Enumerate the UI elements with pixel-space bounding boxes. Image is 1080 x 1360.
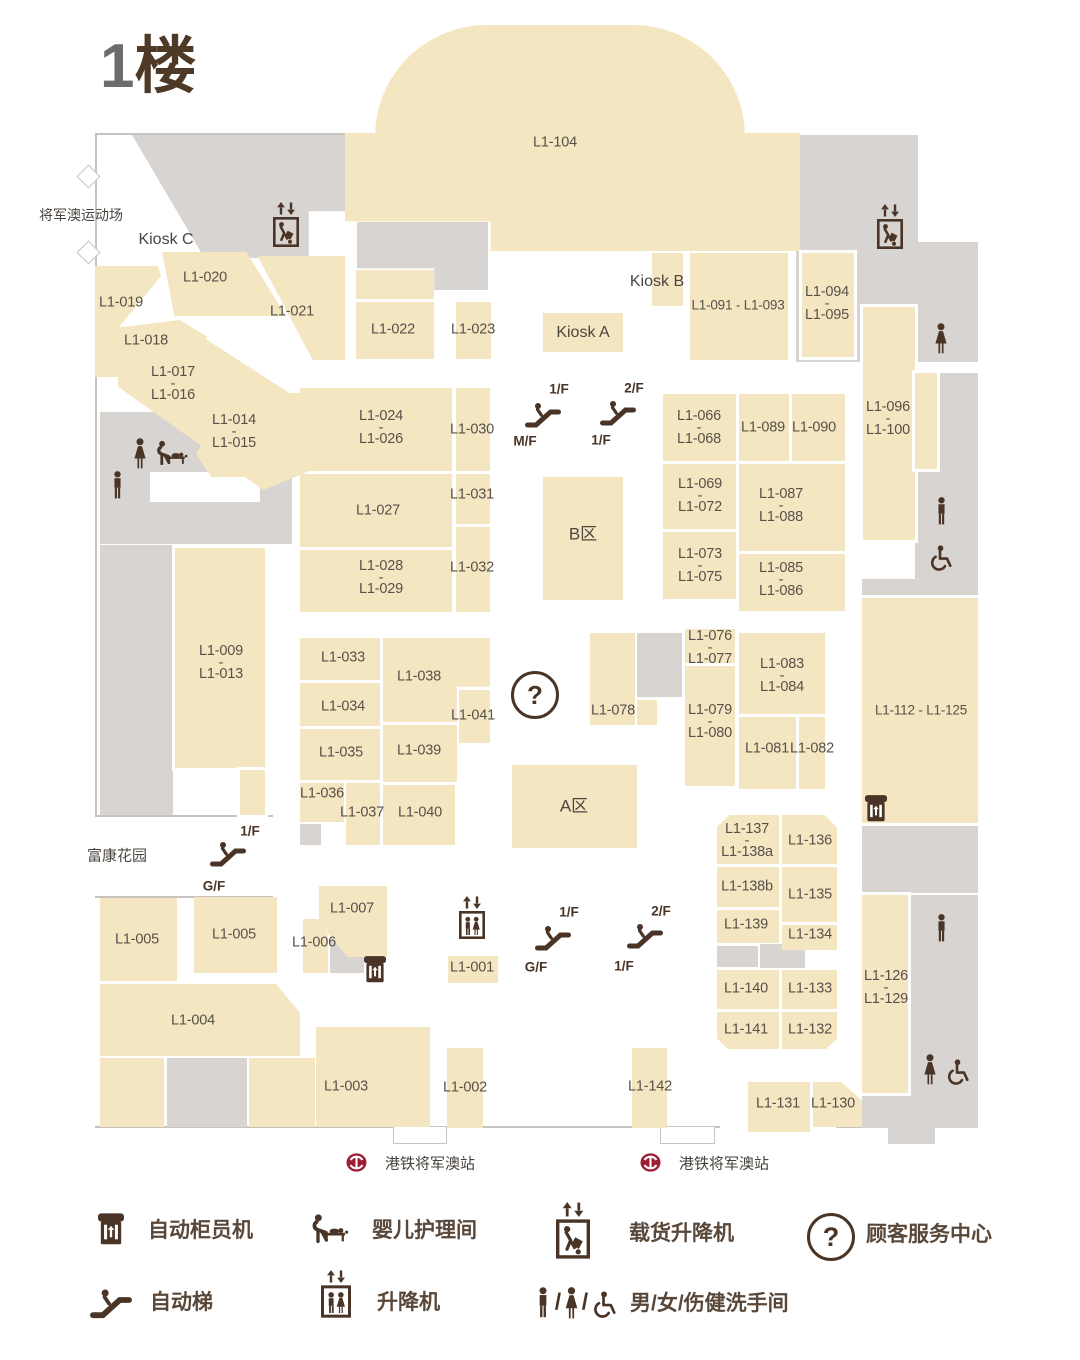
boundary-left: [95, 133, 97, 817]
unit-l1-006-label: L1-006: [292, 937, 336, 949]
atm-icon: [98, 1212, 124, 1245]
unit-l1-034-label: L1-034: [321, 701, 365, 713]
corridor-right-bottom2: [862, 1095, 908, 1128]
unit-l1-078-label: L1-078: [591, 705, 635, 717]
up-down-arrows-icon: [325, 1270, 347, 1283]
legend-label-cargo-lift: 载货升降机: [629, 1217, 734, 1247]
unit-l1-032-label: L1-032: [450, 562, 494, 574]
slash-separator: /: [555, 1289, 561, 1316]
unit-l1-076-077-label: L1-076 - L1-077: [688, 631, 732, 666]
lift-icon: [459, 911, 485, 939]
unit-l1-069-072-label: L1-069 - L1-072: [678, 479, 722, 514]
mtr-entrance-notch: [393, 1127, 447, 1144]
male-toilet-icon: [536, 1287, 550, 1318]
unit-l1-003-label: L1-003: [324, 1081, 368, 1093]
escalator-floor-label: 1/F: [559, 905, 579, 920]
info-icon: ?: [511, 671, 559, 719]
unit-l1-066-068-label: L1-066 - L1-068: [677, 411, 721, 446]
corridor-left: [100, 545, 173, 815]
unit-l1-079-080-label: L1-079 - L1-080: [688, 705, 732, 740]
unit-l1-096-100-label: L1-096 - L1-100: [866, 402, 910, 437]
unit-l1-134-label: L1-134: [788, 929, 832, 941]
mtr-entrance-notch: [660, 1127, 715, 1144]
unit-l1-020-label: L1-020: [183, 272, 227, 284]
floor-plan-level1: 1楼: [0, 0, 1080, 1360]
b-zone-label: B区: [569, 520, 597, 545]
unit-l1-041-label: L1-041: [451, 710, 495, 722]
unit-l1-031-label: L1-031: [450, 489, 494, 501]
up-down-arrows-icon: [275, 202, 297, 215]
escalator-icon: [626, 921, 664, 951]
unit-l1-073-075-label: L1-073 - L1-075: [678, 549, 722, 584]
unit-l1-001-label: L1-001: [450, 962, 494, 974]
male-toilet-icon: [935, 914, 948, 942]
male-toilet-icon: [935, 497, 948, 525]
info-icon: ?: [807, 1213, 855, 1261]
unit-l1-141-label: L1-141: [724, 1024, 768, 1036]
unit-l1-037-label: L1-037: [340, 807, 384, 819]
escalator-floor-label: 1/F: [614, 959, 634, 974]
boundary-top: [95, 133, 347, 135]
escalator-floor-label: 2/F: [624, 381, 644, 396]
unit-l1-002-label: L1-002: [443, 1082, 487, 1094]
legend-label-toilets: 男/女/伤健洗手间: [630, 1287, 789, 1317]
cargo-lift-icon: [877, 219, 903, 249]
exit-sports-ground-label: 将军澳运动场: [39, 205, 123, 225]
kiosk-b-label: Kiosk B: [630, 273, 684, 291]
unit-l1-004-foot: [249, 1058, 315, 1127]
unit-l1-004-label: L1-004: [171, 1015, 215, 1027]
unit-l1-089-label: L1-089: [741, 422, 785, 434]
escalator-floor-label: 2/F: [651, 904, 671, 919]
legend-label-atm: 自动柜员机: [148, 1214, 253, 1244]
service-notch-block-a: [717, 946, 758, 967]
unit-l1-005-a-label: L1-005: [115, 934, 159, 946]
corridor-right-mid: [937, 373, 978, 469]
legend-label-info: 顾客服务中心: [866, 1218, 992, 1248]
wheelchair-icon: [927, 545, 953, 571]
escalator-floor-label: M/F: [513, 434, 536, 449]
escalator-icon: [599, 398, 637, 428]
unit-l1-027-label: L1-027: [356, 505, 400, 517]
corridor-right-lower: [862, 823, 978, 893]
unit-l1-021-label: L1-021: [270, 306, 314, 318]
unit-l1-130-label: L1-130: [811, 1098, 855, 1110]
unit-l1-014-015-label: L1-014 - L1-015: [212, 415, 256, 450]
unit-unlabelled-top: [356, 270, 434, 299]
female-toilet-icon: [564, 1287, 579, 1319]
up-down-arrows-icon: [879, 204, 901, 217]
unit-l1-009-013-label: L1-009 - L1-013: [199, 646, 243, 681]
unit-l1-005-b-label: L1-005: [212, 929, 256, 941]
a-zone-label: A区: [560, 792, 588, 817]
unit-l1-033-label: L1-033: [321, 652, 365, 664]
unit-l1-131-label: L1-131: [756, 1098, 800, 1110]
baby-care-icon: [310, 1213, 350, 1243]
unit-l1-036-label: L1-036: [300, 788, 344, 800]
mtr-station-label: 港铁将军澳站: [385, 1153, 475, 1174]
cargo-lift-icon: [273, 217, 299, 247]
legend-label-escalator: 自动梯: [150, 1286, 213, 1316]
service-notch-036: [300, 824, 321, 845]
unit-l1-090-label: L1-090: [792, 422, 836, 434]
atm-icon: [865, 794, 887, 822]
unit-l1-126-129-label: L1-126 - L1-129: [864, 971, 908, 1006]
unit-l1-019-label: L1-019: [99, 297, 143, 309]
unit-l1-022-label: L1-022: [371, 324, 415, 336]
female-toilet-icon: [934, 323, 948, 354]
service-block-004: [167, 1058, 247, 1127]
unit-l1-140-label: L1-140: [724, 983, 768, 995]
unit-l1-139-label: L1-139: [724, 919, 768, 931]
unit-l1-137-138a-label: L1-137 - L1-138a: [721, 824, 773, 859]
unit-l1-030-label: L1-030: [450, 424, 494, 436]
escalator-floor-label: 1/F: [549, 382, 569, 397]
corridor-right-strip: [862, 579, 978, 598]
unit-l1-085-086-label: L1-085 - L1-086: [759, 563, 803, 598]
female-toilet-icon: [133, 438, 147, 469]
unit-l1-142-label: L1-142: [628, 1081, 672, 1093]
legend-label-baby-care: 婴儿护理间: [372, 1214, 477, 1244]
unit-l1-104-dome: [375, 25, 745, 137]
up-down-arrows-icon: [461, 896, 483, 909]
unit-l1-087-088-label: L1-087 - L1-088: [759, 489, 803, 524]
service-notch-078: [637, 633, 682, 697]
floor-word: 楼: [134, 32, 196, 101]
corridor-right-tab: [888, 1128, 935, 1144]
legend-label-lift: 升降机: [377, 1286, 440, 1316]
unit-l1-038-label: L1-038: [397, 671, 441, 683]
question-mark: ?: [527, 680, 543, 711]
unit-l1-091-093-label: L1-091 - L1-093: [691, 299, 784, 311]
up-down-arrows-icon: [561, 1202, 585, 1217]
mtr-icon: [346, 1152, 367, 1173]
escalator-icon: [524, 400, 562, 430]
unit-l1-078-ext: [637, 700, 657, 725]
lift-icon: [321, 1285, 351, 1318]
escalator-floor-label: 1/F: [591, 433, 611, 448]
kiosk-c-label: Kiosk C: [138, 231, 193, 249]
unit-l1-003: [316, 1027, 430, 1127]
kiosk-a-label: Kiosk A: [556, 324, 609, 342]
escalator-floor-label: G/F: [525, 960, 548, 975]
unit-l1-112-125-label: L1-112 - L1-125: [875, 704, 967, 716]
mtr-station-label: 港铁将军澳站: [679, 1153, 769, 1174]
unit-l1-039-label: L1-039: [397, 745, 441, 757]
escalator-icon: [88, 1286, 134, 1321]
unit-l1-004-leg: [100, 1058, 164, 1127]
floor-number: 1: [100, 32, 134, 101]
cargo-lift-icon: [556, 1219, 590, 1259]
unit-l1-007-label: L1-007: [330, 903, 374, 915]
unit-l1-136-label: L1-136: [788, 835, 832, 847]
female-toilet-icon: [923, 1054, 937, 1085]
unit-l1-133-label: L1-133: [788, 983, 832, 995]
unit-l1-081-label: L1-081: [745, 743, 789, 755]
mtr-icon: [640, 1152, 661, 1173]
escalator-icon: [209, 839, 247, 869]
exit-fukang-garden-label: 富康花园: [87, 845, 147, 866]
boundary-fukang-top: [95, 815, 273, 817]
unit-l1-135-label: L1-135: [788, 889, 832, 901]
unit-l1-138b-label: L1-138b: [721, 881, 773, 893]
unit-l1-094-095-label: L1-094 - L1-095: [805, 287, 849, 322]
unit-l1-024-026-label: L1-024 - L1-026: [359, 411, 403, 446]
unit-l1-028-029-label: L1-028 - L1-029: [359, 561, 403, 596]
atm-icon: [364, 955, 386, 983]
unit-l1-104-label: L1-104: [533, 137, 577, 149]
unit-l1-040-label: L1-040: [398, 807, 442, 819]
unit-l1-132-label: L1-132: [788, 1024, 832, 1036]
escalator-floor-label: 1/F: [240, 824, 260, 839]
unit-l1-018-label: L1-018: [124, 335, 168, 347]
baby-care-icon: [155, 440, 189, 465]
wheelchair-icon: [944, 1059, 970, 1085]
unit-l1-023-label: L1-023: [451, 324, 495, 336]
unit-l1-009-013-foot: [240, 770, 265, 815]
slash-separator: /: [582, 1289, 588, 1316]
unit-l1-035-label: L1-035: [319, 747, 363, 759]
unit-l1-096-100-wing: [915, 373, 937, 469]
escalator-floor-label: G/F: [203, 879, 226, 894]
male-toilet-icon: [111, 471, 124, 499]
question-mark: ?: [823, 1222, 840, 1253]
unit-l1-083-084-label: L1-083 - L1-084: [760, 659, 804, 694]
unit-l1-017-016-label: L1-017 - L1-016: [151, 367, 195, 402]
unit-l1-082-label: L1-082: [790, 743, 834, 755]
wheelchair-icon: [590, 1291, 617, 1318]
escalator-icon: [534, 923, 572, 953]
page-title: 1楼: [100, 36, 197, 98]
